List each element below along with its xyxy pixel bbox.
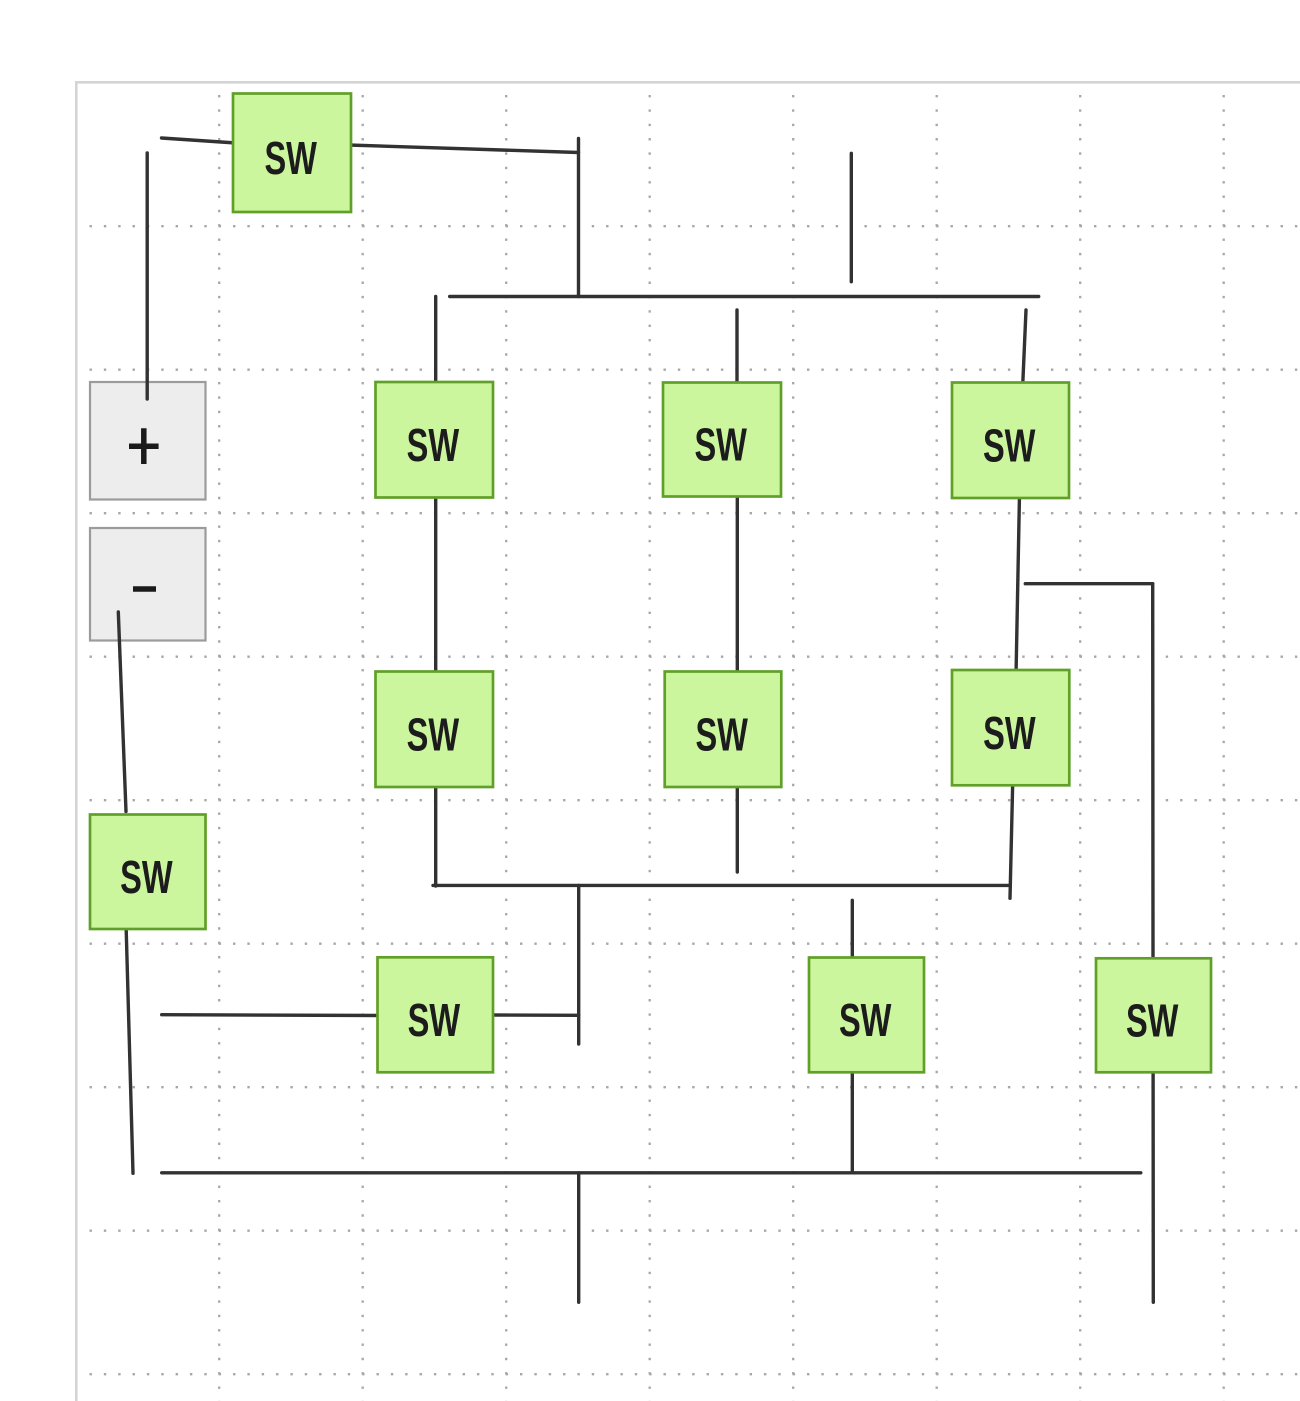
svg-text:SW: SW: [264, 132, 317, 184]
svg-text:SW: SW: [407, 419, 460, 471]
svg-text:SW: SW: [839, 994, 892, 1046]
svg-text:SW: SW: [983, 419, 1036, 471]
svg-text:SW: SW: [1126, 995, 1179, 1047]
svg-text:SW: SW: [120, 851, 173, 903]
svg-text:SW: SW: [695, 709, 748, 761]
svg-text:SW: SW: [408, 994, 461, 1046]
svg-text:SW: SW: [407, 709, 460, 761]
svg-text:SW: SW: [694, 419, 747, 471]
svg-text:SW: SW: [983, 707, 1036, 759]
